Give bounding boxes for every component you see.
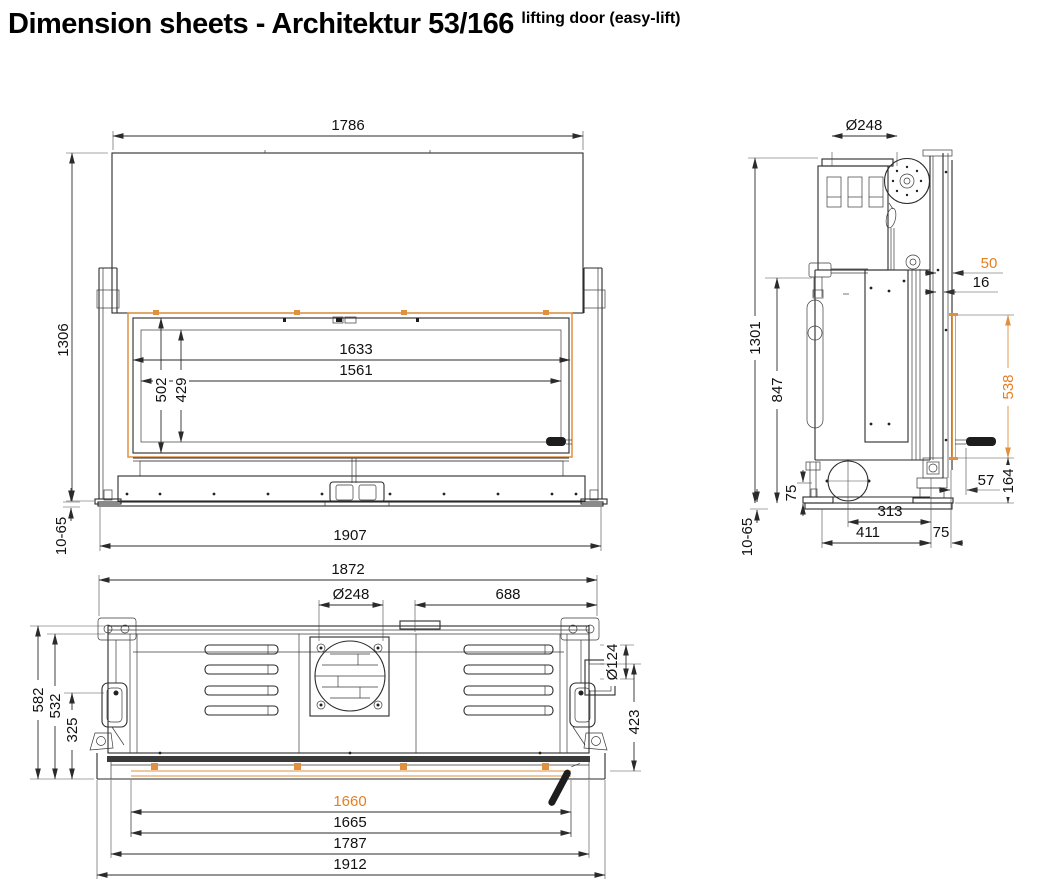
svg-text:1787: 1787 <box>333 835 366 852</box>
side-dim-door-lift-height: 538 <box>958 315 1017 458</box>
front-dim-glass-frame-height: 502 <box>153 318 170 453</box>
top-dim-flue-to-right: 688 <box>415 586 597 632</box>
page-title: Dimension sheets - Architektur 53/166 li… <box>8 8 681 41</box>
svg-text:1660: 1660 <box>333 793 366 810</box>
front-door-handle <box>546 437 572 446</box>
svg-text:1912: 1912 <box>333 856 366 873</box>
top-corner-brackets <box>90 618 607 750</box>
front-dim-overall-width: 1786 <box>113 117 583 150</box>
svg-text:75: 75 <box>783 485 800 502</box>
top-front-fascia <box>97 752 605 779</box>
side-dim-front-offset: 50 <box>925 255 1003 273</box>
side-door-panel <box>906 150 952 478</box>
svg-text:1633: 1633 <box>339 341 372 358</box>
top-dim-flue-diameter: Ø248 <box>319 586 383 641</box>
svg-text:57: 57 <box>978 472 995 489</box>
dimension-drawing: 1786 1306 1633 1561 <box>0 0 1049 891</box>
svg-text:1301: 1301 <box>747 321 764 354</box>
front-dim-glass-height: 429 <box>173 330 190 442</box>
front-door-frame <box>128 310 572 457</box>
side-body <box>807 263 930 497</box>
svg-text:502: 502 <box>153 377 170 402</box>
top-vent-slots-right <box>464 645 553 715</box>
side-upper-box <box>818 166 888 270</box>
svg-text:1872: 1872 <box>331 561 364 578</box>
svg-text:Ø248: Ø248 <box>333 586 370 603</box>
dimension-sheet-page: Dimension sheets - Architektur 53/166 li… <box>0 0 1049 891</box>
side-dim-body-height: 847 <box>765 278 812 503</box>
top-latch-left <box>102 640 127 745</box>
front-base <box>118 458 585 506</box>
top-dim-front-frame-depth: 325 <box>64 693 104 779</box>
front-view: 1786 1306 1633 1561 <box>53 117 607 555</box>
svg-text:16: 16 <box>973 274 990 291</box>
page-title-main: Dimension sheets - Architektur 53/166 <box>8 8 514 40</box>
front-dim-base-width: 1907 <box>100 507 601 551</box>
side-view: Ø248 50 16 1301 <box>739 117 1017 556</box>
top-door-handle <box>547 759 580 809</box>
top-vent-slots-left <box>205 645 278 715</box>
svg-text:325: 325 <box>64 717 81 742</box>
side-door-handle <box>955 437 996 446</box>
side-cable-hook <box>885 203 898 270</box>
svg-text:1786: 1786 <box>331 117 364 134</box>
svg-text:532: 532 <box>47 693 64 718</box>
front-dim-overall-height: 1306 <box>55 153 108 501</box>
svg-text:1907: 1907 <box>333 527 366 544</box>
svg-text:538: 538 <box>1000 374 1017 399</box>
side-dim-floor-clearance: 10-65 <box>739 489 768 556</box>
side-flue-collar <box>822 159 893 166</box>
svg-text:50: 50 <box>981 255 998 272</box>
top-dim-overall-depth: 582 <box>30 626 105 779</box>
svg-text:423: 423 <box>626 709 643 734</box>
front-dim-floor-clearance: 10-65 <box>53 488 80 555</box>
svg-text:Ø124: Ø124 <box>604 644 621 681</box>
front-left-column <box>95 268 121 504</box>
top-dim-body-depth: 532 <box>47 634 105 779</box>
svg-text:1561: 1561 <box>339 362 372 379</box>
svg-text:10-65: 10-65 <box>53 517 70 555</box>
side-air-intake <box>826 459 871 503</box>
svg-text:688: 688 <box>495 586 520 603</box>
side-door-seal <box>949 313 958 460</box>
top-dim-door-inner-width: 1665 <box>131 812 571 837</box>
svg-text:1306: 1306 <box>55 323 72 356</box>
front-right-column <box>581 268 607 504</box>
svg-text:Ø248: Ø248 <box>846 117 883 134</box>
top-latch-right <box>570 640 595 745</box>
svg-text:313: 313 <box>877 503 902 520</box>
svg-text:847: 847 <box>769 377 786 402</box>
front-floor-plate <box>98 502 603 506</box>
svg-text:10-65: 10-65 <box>739 518 756 556</box>
front-dim-glass-width: 1561 <box>141 362 561 381</box>
svg-text:582: 582 <box>30 687 47 712</box>
svg-text:411: 411 <box>856 524 880 541</box>
page-title-superscript: lifting door (easy-lift) <box>521 10 680 27</box>
top-dim-intake-diameter: Ø124 <box>600 638 634 686</box>
side-pulley-wheel <box>885 159 930 204</box>
top-view: 1872 Ø248 688 582 <box>30 561 643 879</box>
side-vent-slots <box>827 177 883 207</box>
front-dim-glass-frame-width: 1633 <box>133 341 570 360</box>
svg-text:429: 429 <box>173 377 190 402</box>
side-feet <box>803 458 953 503</box>
side-dim-front-gap: 16 <box>925 274 998 292</box>
svg-text:164: 164 <box>1000 468 1017 493</box>
svg-text:1665: 1665 <box>333 814 366 831</box>
svg-text:75: 75 <box>933 524 950 541</box>
